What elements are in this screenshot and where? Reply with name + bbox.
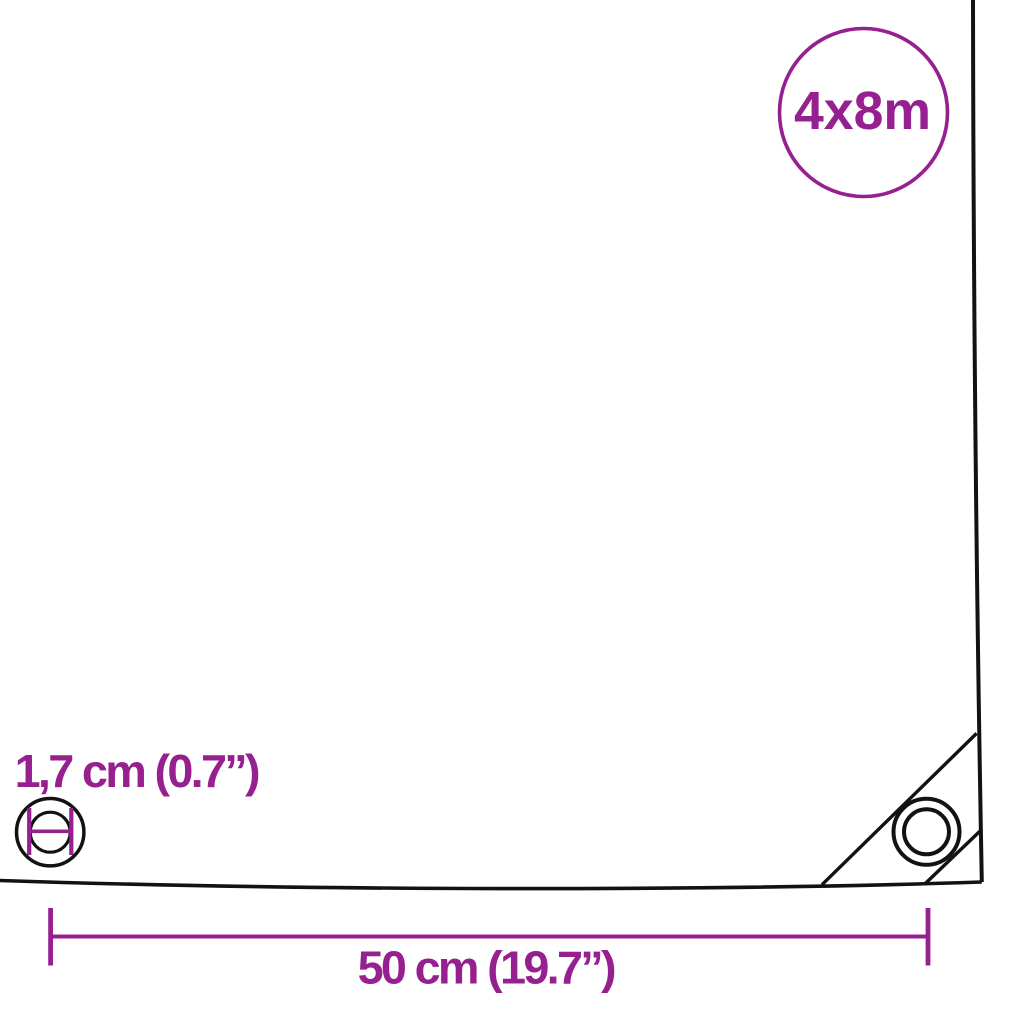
svg-text:4x8m: 4x8m bbox=[794, 81, 931, 141]
svg-text:1,7 cm (0.7”): 1,7 cm (0.7”) bbox=[15, 745, 261, 797]
svg-text:50 cm (19.7”): 50 cm (19.7”) bbox=[358, 941, 617, 993]
